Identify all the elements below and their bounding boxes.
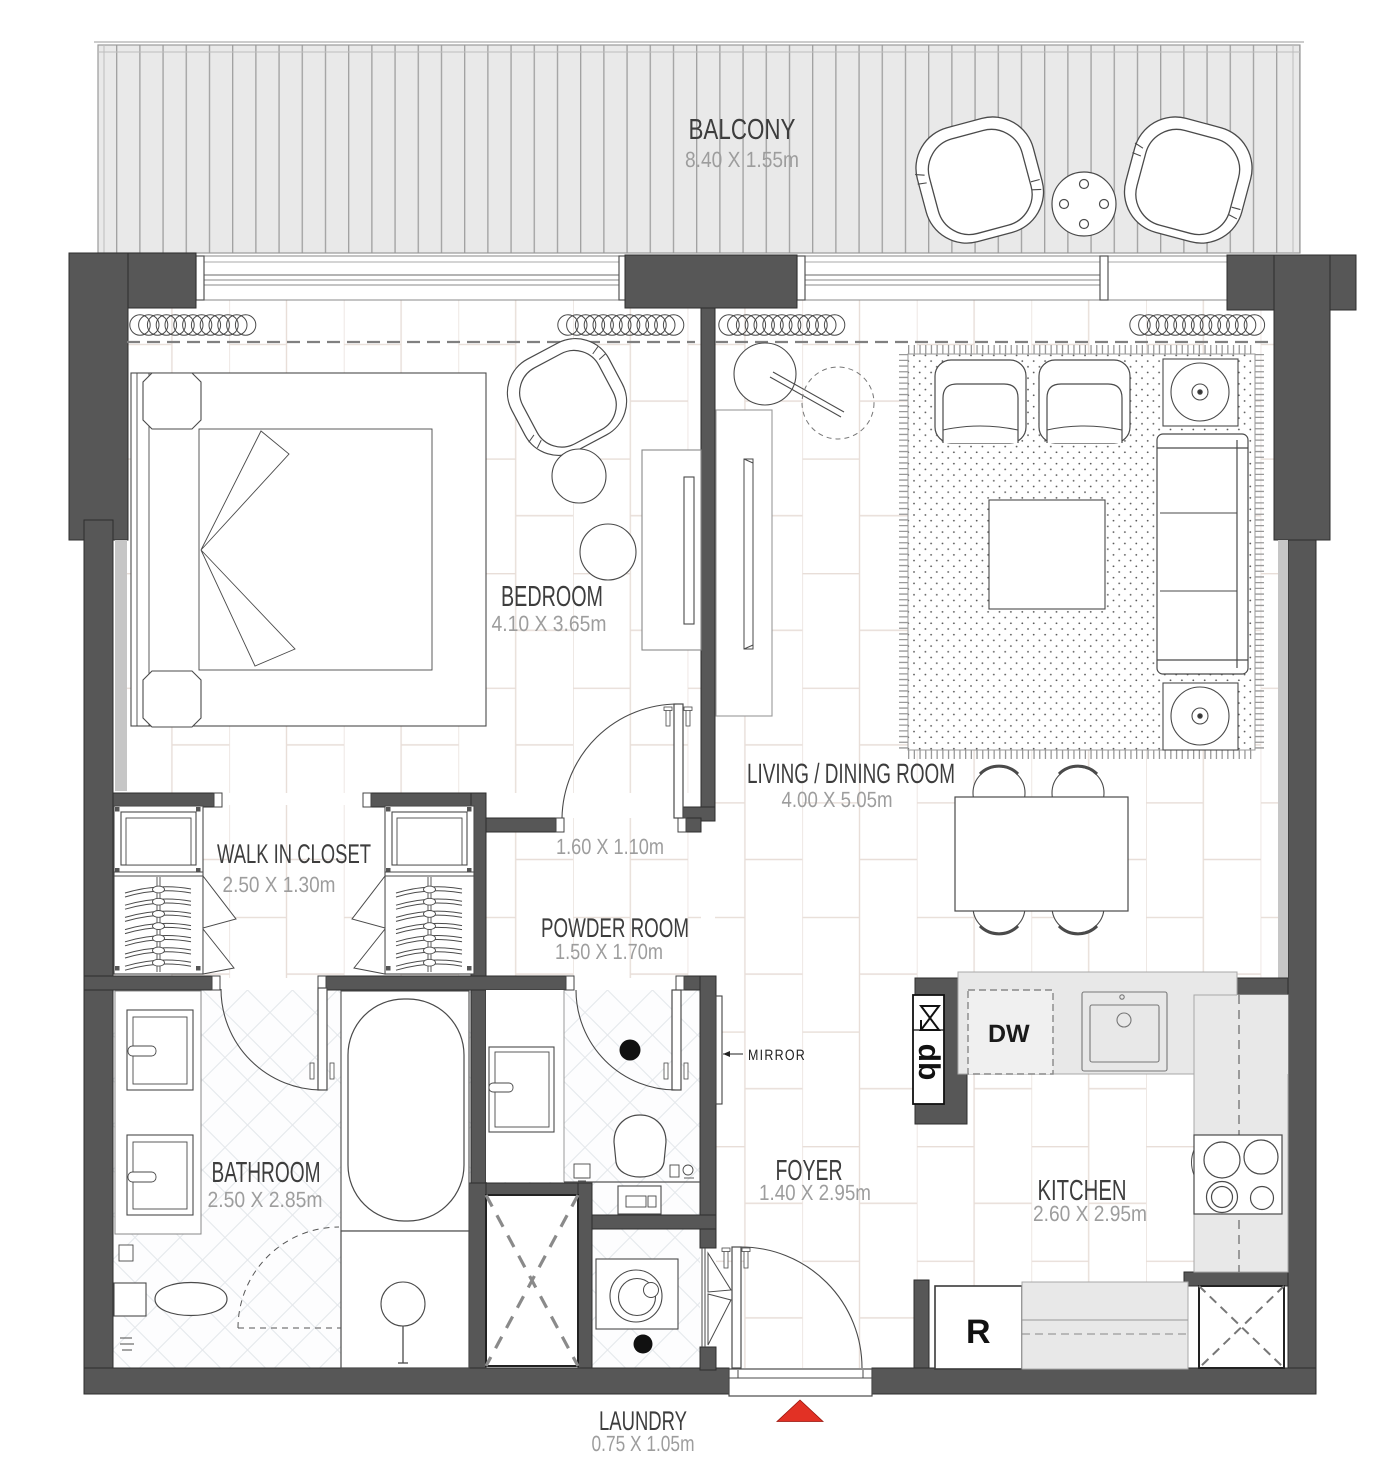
svg-text:BALCONY: BALCONY [689, 114, 796, 146]
svg-text:2.50 X 1.30m: 2.50 X 1.30m [223, 872, 336, 897]
svg-text:db: db [912, 1044, 945, 1081]
svg-text:WALK IN CLOSET: WALK IN CLOSET [217, 839, 371, 869]
svg-text:0.75 X 1.05m: 0.75 X 1.05m [592, 1431, 695, 1456]
svg-text:MIRROR: MIRROR [748, 1047, 806, 1064]
svg-text:1.40 X 2.95m: 1.40 X 2.95m [759, 1180, 871, 1205]
svg-text:4.10 X 3.65m: 4.10 X 3.65m [492, 611, 607, 636]
svg-text:BEDROOM: BEDROOM [501, 581, 603, 613]
svg-text:2.60 X 2.95m: 2.60 X 2.95m [1033, 1201, 1147, 1226]
svg-text:R: R [966, 1313, 991, 1351]
svg-text:1.50 X 1.70m: 1.50 X 1.70m [555, 939, 663, 964]
svg-text:1.60 X 1.10m: 1.60 X 1.10m [556, 834, 664, 859]
svg-text:BATHROOM: BATHROOM [212, 1157, 321, 1189]
svg-text:2.50 X 2.85m: 2.50 X 2.85m [208, 1187, 323, 1212]
svg-text:LIVING / DINING ROOM: LIVING / DINING ROOM [747, 758, 955, 789]
svg-text:DW: DW [988, 1020, 1030, 1048]
svg-text:8.40 X 1.55m: 8.40 X 1.55m [685, 147, 799, 172]
svg-text:4.00 X 5.05m: 4.00 X 5.05m [782, 787, 893, 812]
